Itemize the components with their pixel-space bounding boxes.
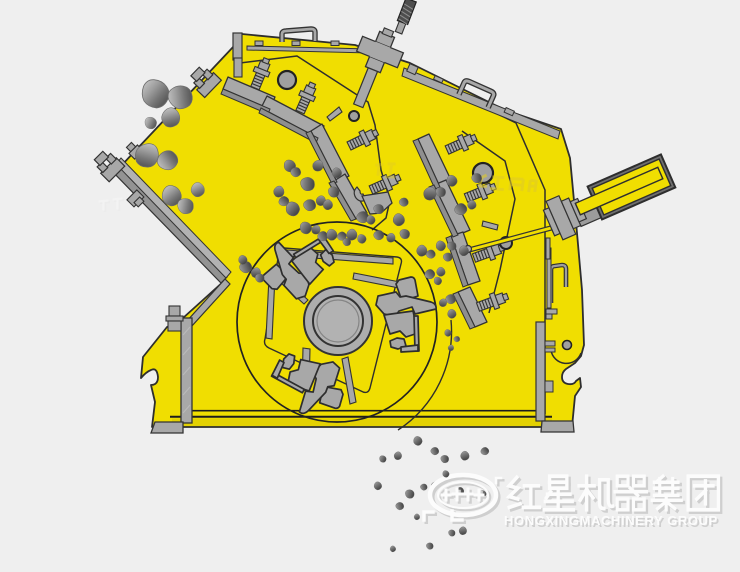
svg-text:HONGXINGMACHINERY GROUP: HONGXINGMACHINERY GROUP (504, 513, 718, 528)
